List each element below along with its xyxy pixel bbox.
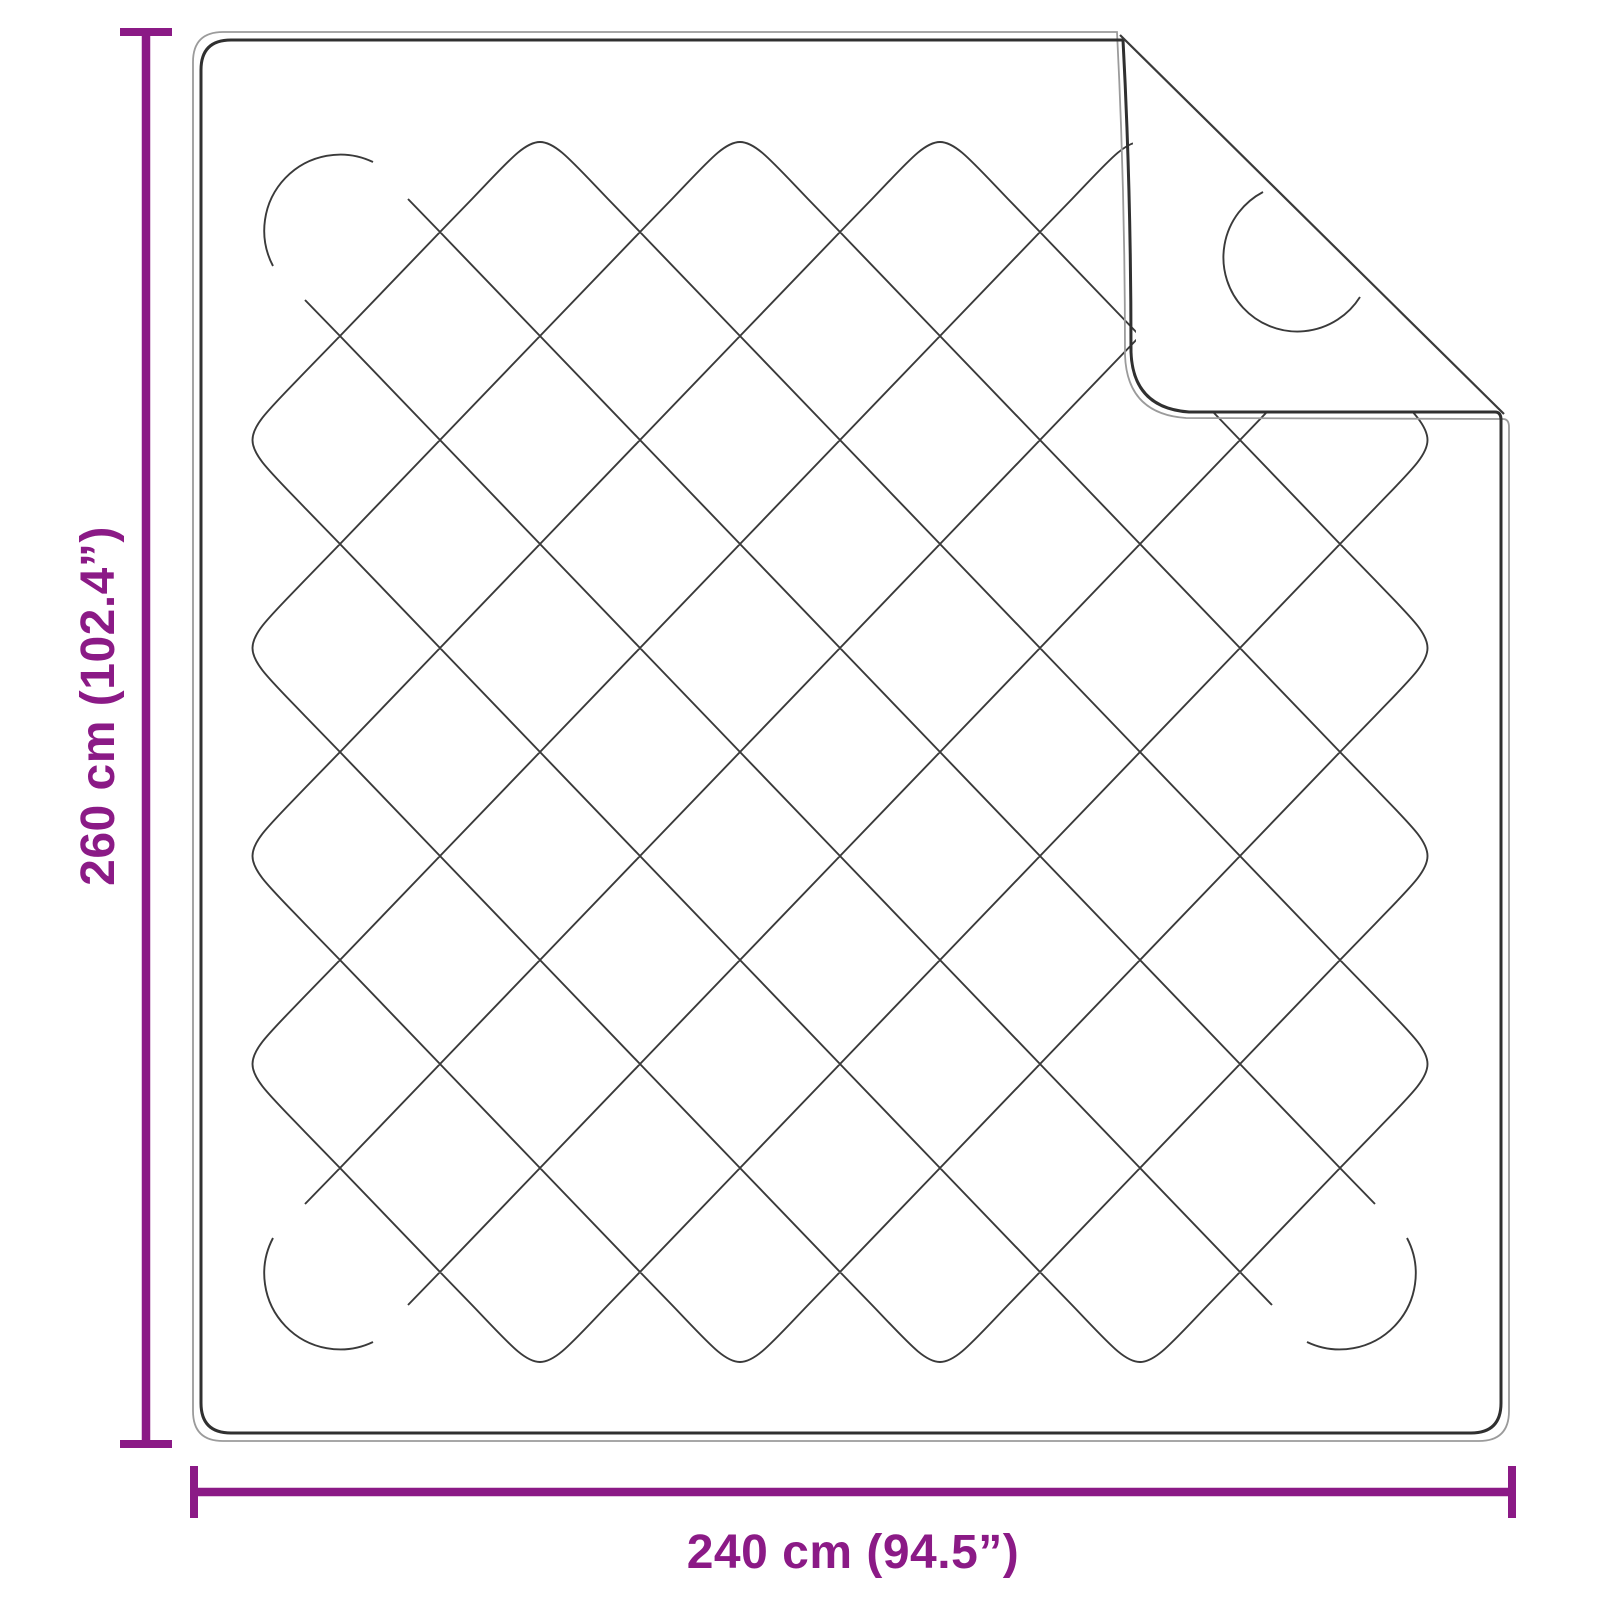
quilt-corner-loops [264, 155, 1416, 1350]
flap-stitch-loop [1223, 192, 1360, 332]
width-dimension-label: 240 cm (94.5”) [687, 1526, 1020, 1579]
blanket-outline-inner [201, 40, 1501, 1433]
horizontal-dimension-line [194, 1466, 1512, 1518]
diagram-canvas: 260 cm (102.4”) 240 cm (94.5”) [0, 0, 1600, 1600]
fold-crease-line [1120, 35, 1504, 414]
vertical-dimension-line [120, 32, 172, 1444]
quilt-stitch-lines [253, 142, 1428, 1362]
height-dimension-label: 260 cm (102.4”) [72, 526, 125, 886]
blanket-dimension-diagram: 260 cm (102.4”) 240 cm (94.5”) [0, 0, 1600, 1600]
quilt-pattern [253, 142, 1428, 1362]
